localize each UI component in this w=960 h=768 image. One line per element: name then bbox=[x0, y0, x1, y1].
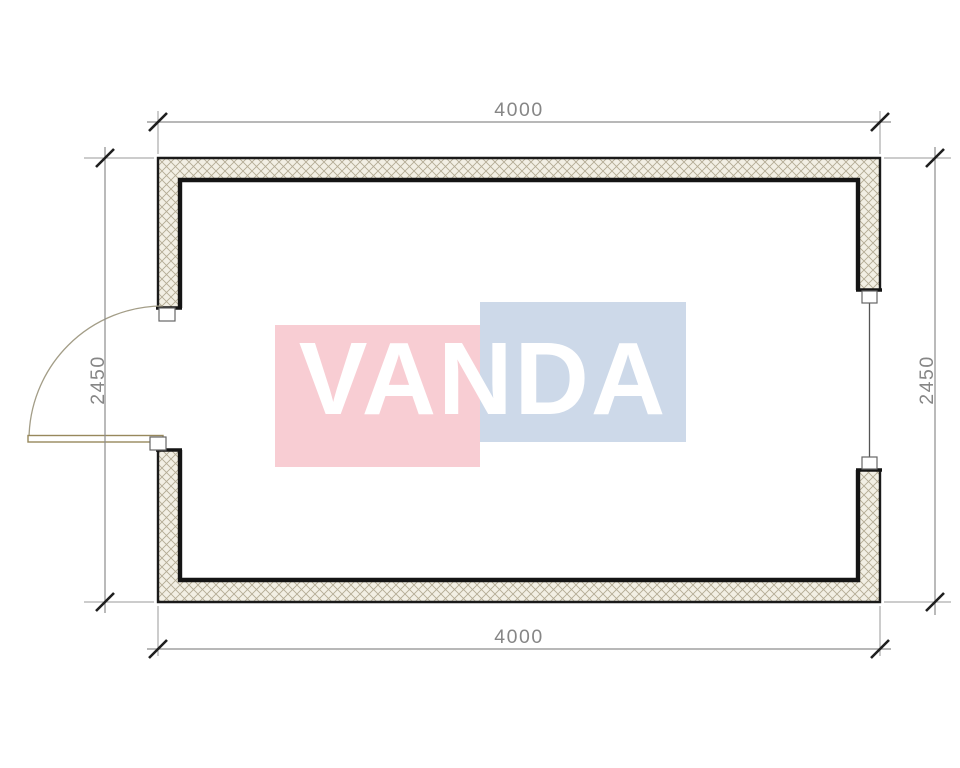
door-leaf bbox=[28, 436, 163, 443]
window bbox=[862, 291, 877, 469]
dimension-label-bottom: 4000 bbox=[494, 626, 543, 648]
floor-plan-drawing: VANDA bbox=[0, 0, 960, 768]
window-jamb-bottom bbox=[862, 457, 877, 469]
wall-top bbox=[158, 158, 880, 180]
wall-bottom bbox=[158, 580, 880, 602]
floor-plan-page: VANDA bbox=[0, 0, 960, 768]
door-jamb-top bbox=[159, 308, 175, 321]
wall-left-upper bbox=[158, 158, 180, 308]
wall-right-lower bbox=[858, 470, 880, 602]
wall-left-lower bbox=[158, 450, 180, 602]
watermark: VANDA bbox=[275, 302, 686, 467]
wall-right-upper bbox=[858, 158, 880, 290]
wall-inner-top-path bbox=[180, 180, 858, 308]
watermark-text: VANDA bbox=[299, 321, 668, 436]
door-jamb-bottom bbox=[150, 437, 166, 450]
dimension-label-top: 4000 bbox=[494, 99, 543, 121]
dimension-label-right: 2450 bbox=[916, 355, 938, 404]
wall-inner-bottom-path bbox=[180, 450, 858, 580]
window-jamb-top bbox=[862, 291, 877, 303]
dimension-label-left: 2450 bbox=[87, 355, 109, 404]
